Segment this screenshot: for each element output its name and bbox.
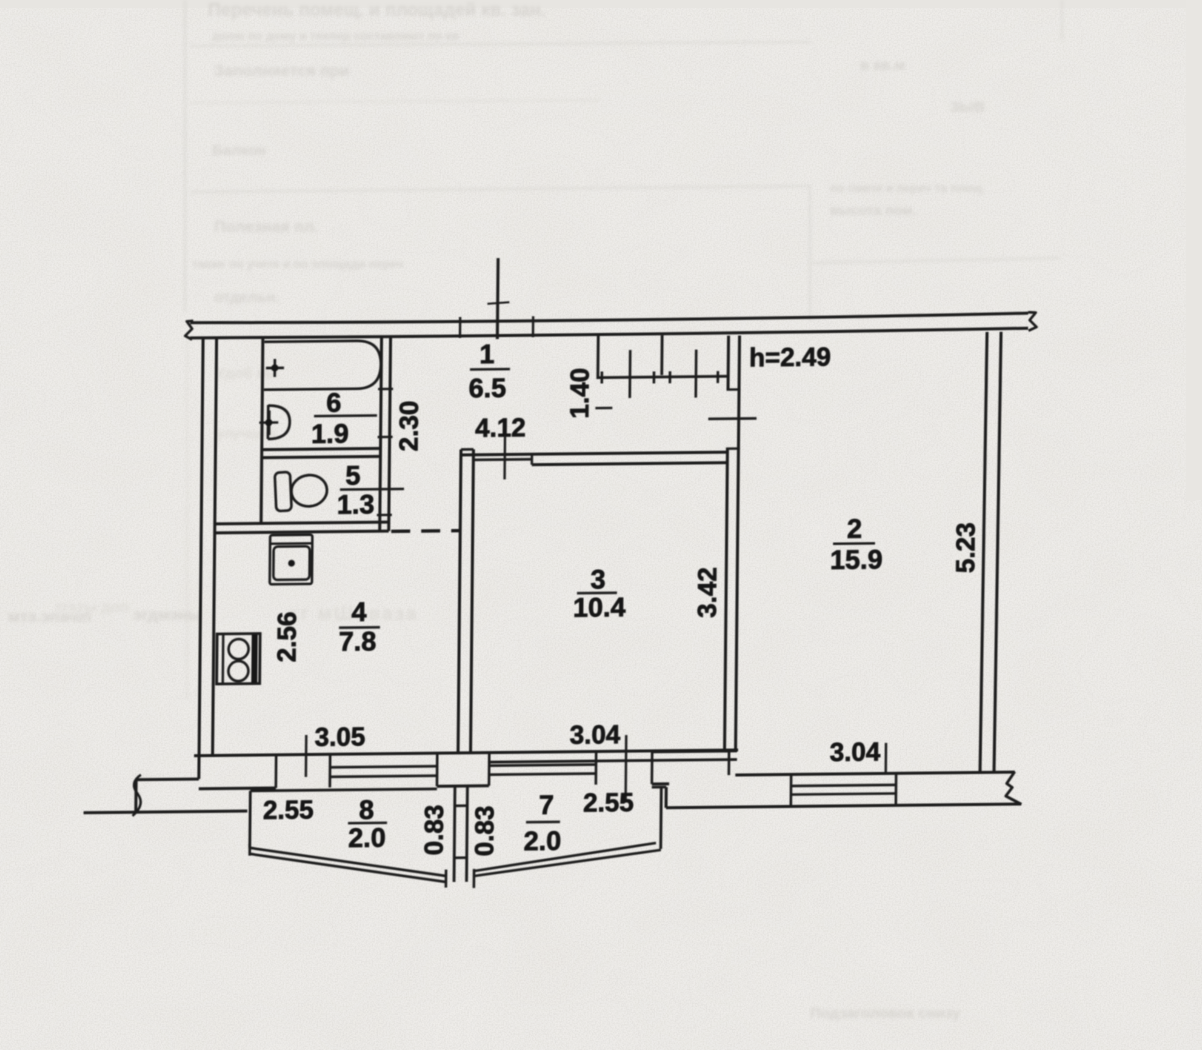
svg-text:5: 5	[345, 460, 360, 490]
svg-text:высота пом.: высота пом.	[830, 202, 916, 218]
svg-text:8: 8	[359, 795, 374, 825]
svg-text:0.83: 0.83	[469, 806, 499, 857]
svg-text:1.40: 1.40	[564, 368, 594, 419]
svg-text:2.55: 2.55	[263, 795, 314, 826]
svg-text:5.23: 5.23	[950, 522, 980, 573]
svg-text:отдельн.: отдельн.	[214, 289, 280, 306]
svg-text:4.12: 4.12	[475, 412, 526, 443]
svg-text:1.9: 1.9	[311, 419, 349, 449]
svg-text:1.3: 1.3	[337, 489, 375, 519]
svg-text:15.9: 15.9	[830, 545, 883, 576]
svg-text:долю по дому и техпер составля: долю по дому и техпер составляют по кв	[212, 29, 459, 43]
svg-text:Полезная пл.: Полезная пл.	[214, 219, 318, 236]
svg-text:7.8: 7.8	[339, 626, 377, 656]
svg-text:1: 1	[479, 339, 494, 369]
svg-text:3.05: 3.05	[315, 721, 366, 752]
svg-text:Балкон: Балкон	[212, 142, 266, 159]
svg-text:2.30: 2.30	[393, 401, 423, 452]
svg-text:3.04: 3.04	[830, 737, 881, 768]
svg-text:3.04: 3.04	[570, 719, 621, 750]
svg-text:2.55: 2.55	[583, 787, 634, 818]
svg-text:6.5: 6.5	[469, 373, 507, 403]
svg-text:2.56: 2.56	[271, 612, 301, 663]
svg-text:по смете и переч та площ: по смете и переч та площ	[830, 181, 983, 195]
svg-text:6: 6	[326, 388, 341, 418]
svg-text:Перечень помещ. и площадей кв.: Перечень помещ. и площадей кв. зан.	[208, 0, 546, 20]
svg-text:тгsты доп: тгsты доп	[55, 599, 129, 616]
svg-text:0.83: 0.83	[419, 805, 449, 856]
svg-text:3.42: 3.42	[692, 567, 722, 618]
svg-text:2.0: 2.0	[523, 826, 561, 856]
svg-text:4: 4	[351, 597, 366, 627]
svg-text:также по учете и по площади пе: также по учете и по площади переч	[192, 257, 403, 271]
svg-text:Заполняется при: Заполняется при	[214, 63, 349, 80]
svg-text:Подзаголовок снизу: Подзаголовок снизу	[810, 1005, 961, 1022]
svg-text:эгдмэны: эгдмэны	[133, 607, 202, 624]
svg-text:h=2.49: h=2.49	[749, 342, 831, 373]
svg-text:ЗЫВ: ЗЫВ	[950, 99, 985, 116]
svg-text:в кв.м: в кв.м	[860, 57, 905, 74]
svg-text:3: 3	[590, 564, 605, 594]
svg-text:2: 2	[847, 514, 862, 544]
svg-text:10.4: 10.4	[573, 592, 626, 623]
svg-text:2.0: 2.0	[348, 823, 386, 853]
svg-text:7: 7	[539, 790, 554, 820]
